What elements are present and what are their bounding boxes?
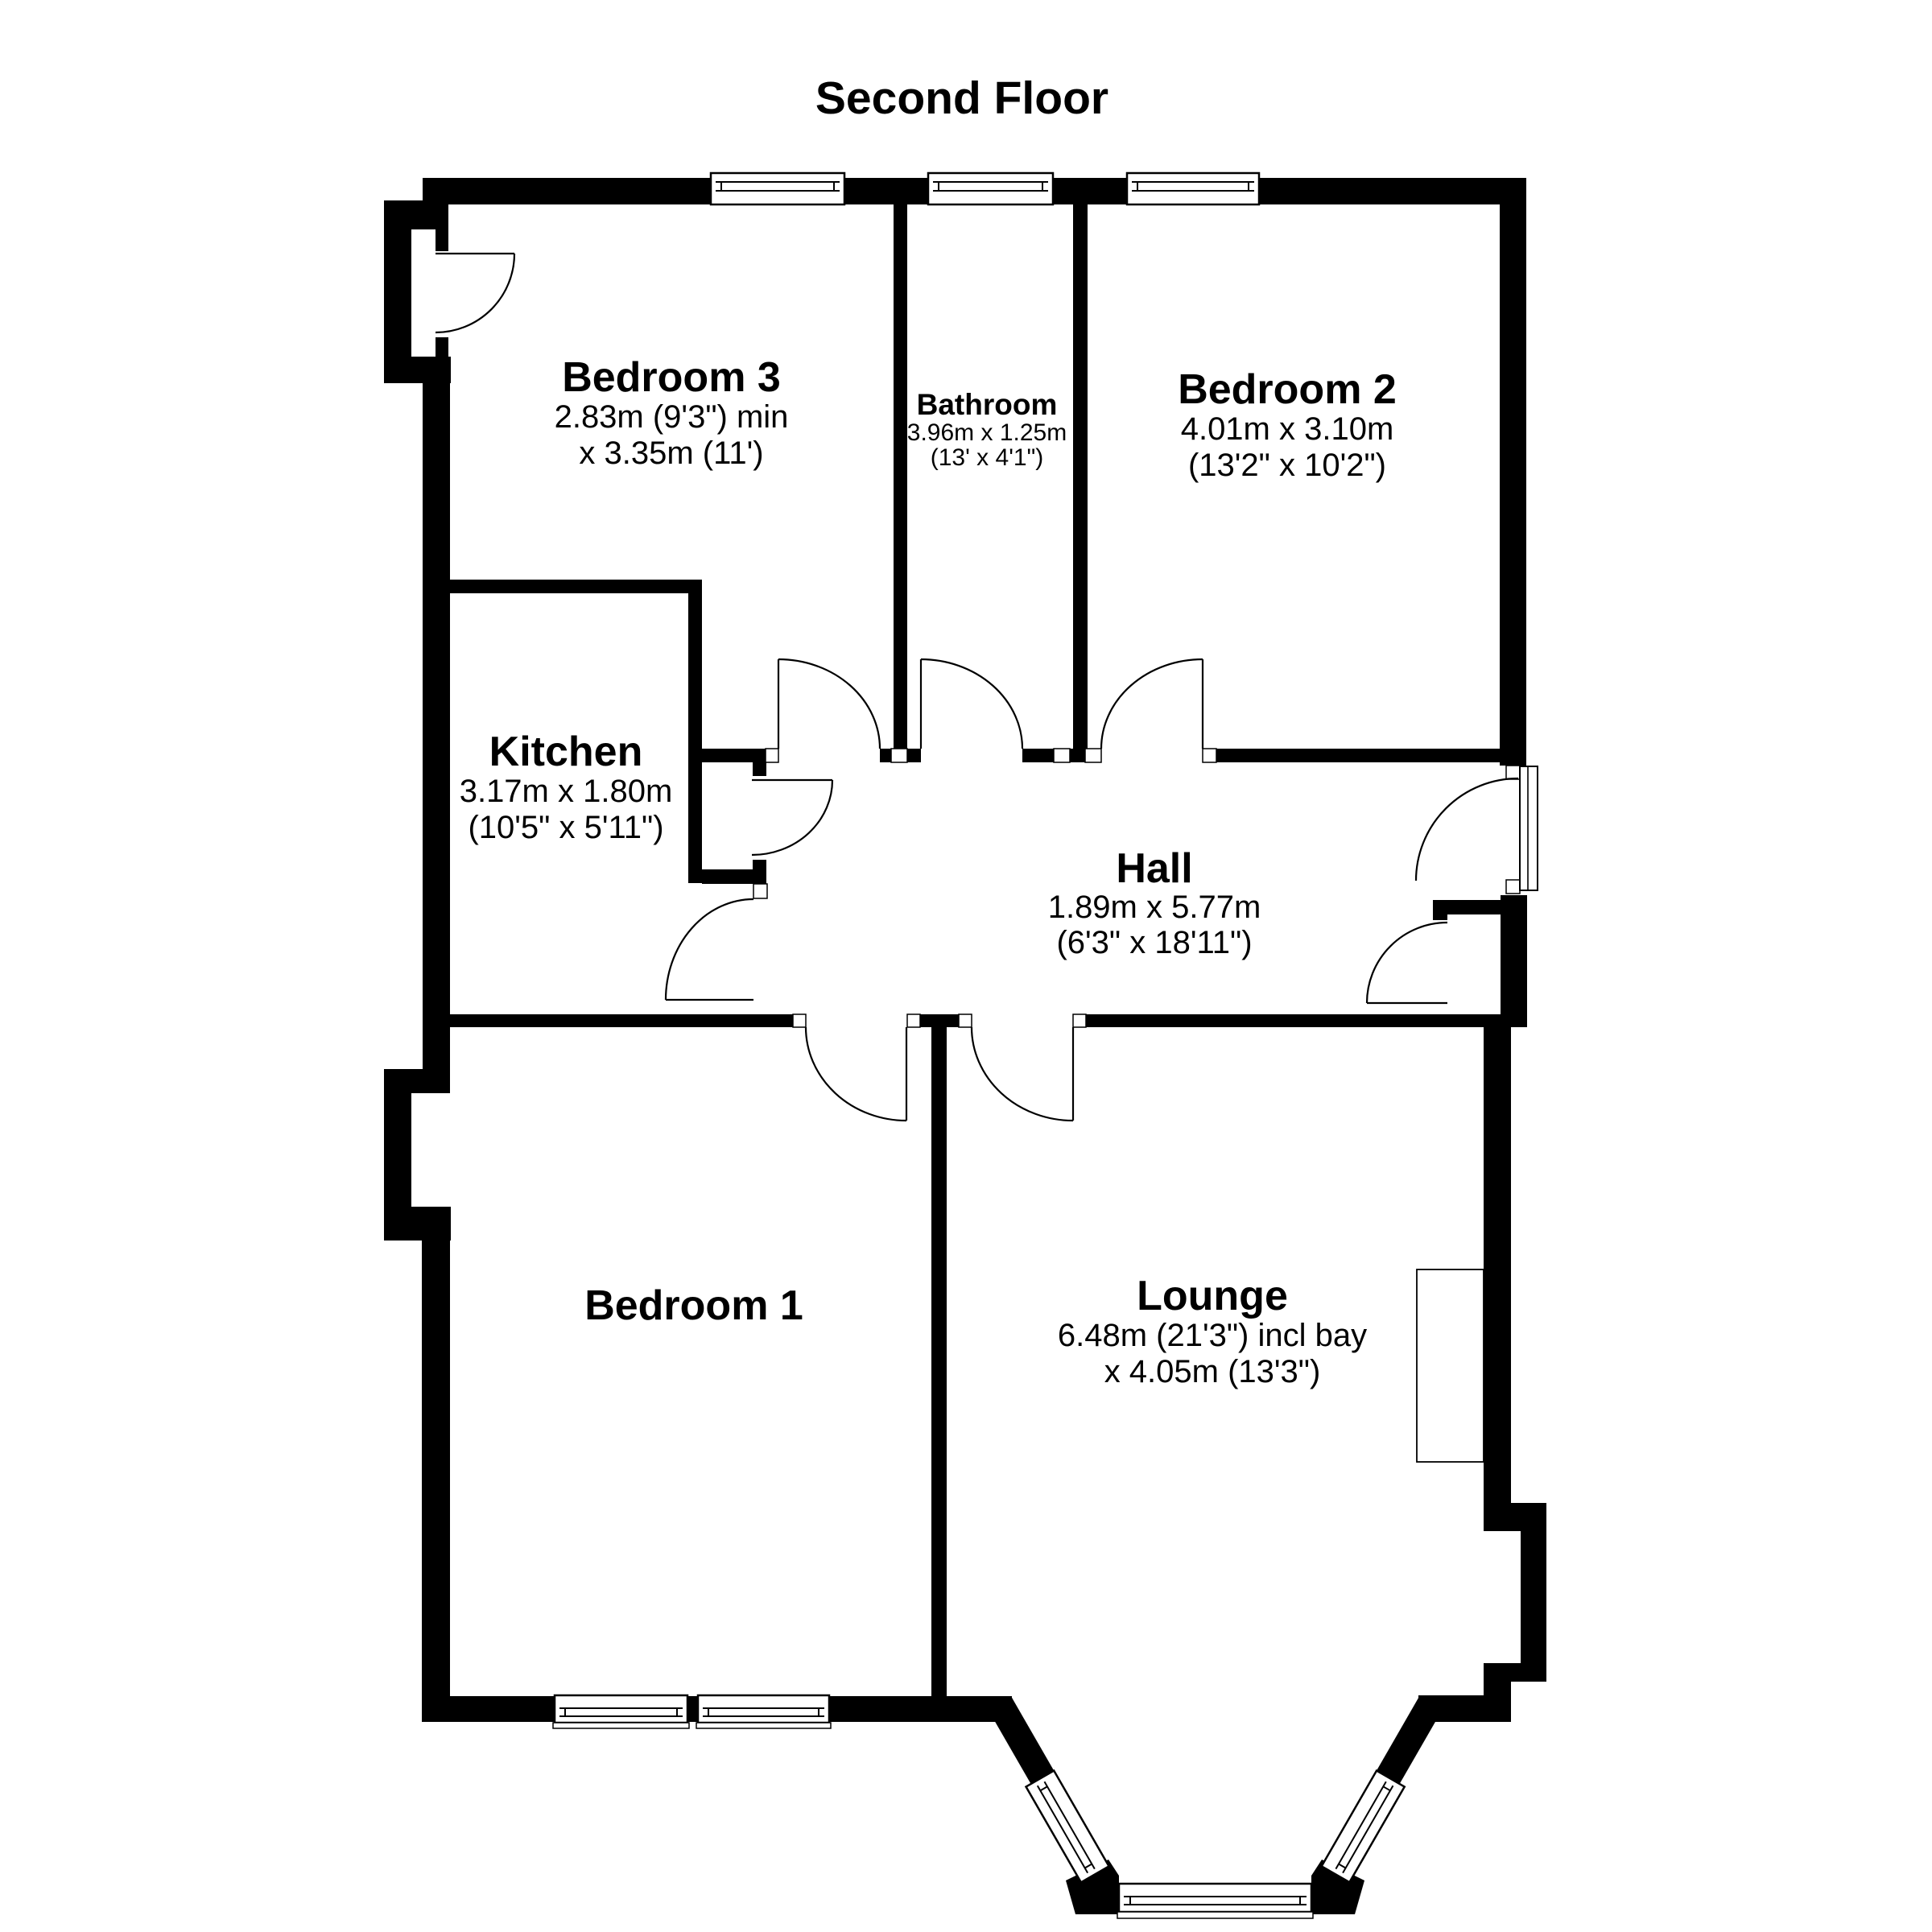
svg-text:Bedroom 1: Bedroom 1 [584,1282,803,1329]
svg-text:Bedroom 3: Bedroom 3 [562,354,781,401]
svg-text:Second Floor: Second Floor [815,72,1108,124]
svg-text:x 3.35m (11'): x 3.35m (11') [579,436,763,471]
svg-text:Hall: Hall [1116,845,1192,892]
svg-text:Kitchen: Kitchen [489,729,643,775]
svg-text:4.01m x 3.10m: 4.01m x 3.10m [1181,411,1394,447]
svg-text:3.96m x 1.25m: 3.96m x 1.25m [907,419,1067,446]
svg-text:Lounge: Lounge [1137,1273,1288,1319]
svg-text:3.17m x 1.80m: 3.17m x 1.80m [460,774,673,809]
svg-text:2.83m (9'3") min: 2.83m (9'3") min [555,399,789,435]
svg-text:(10'5" x 5'11"): (10'5" x 5'11") [468,810,663,845]
svg-text:1.89m x 5.77m: 1.89m x 5.77m [1048,890,1261,925]
svg-text:Bathroom: Bathroom [917,388,1058,421]
svg-text:(13'2" x 10'2"): (13'2" x 10'2") [1188,448,1386,483]
svg-text:Bedroom 2: Bedroom 2 [1178,366,1397,413]
svg-text:(6'3" x 18'11"): (6'3" x 18'11") [1056,925,1252,960]
svg-text:x 4.05m (13'3"): x 4.05m (13'3") [1104,1354,1321,1389]
svg-text:6.48m (21'3") incl bay: 6.48m (21'3") incl bay [1058,1318,1367,1353]
svg-text:(13' x 4'1"): (13' x 4'1") [931,444,1044,471]
